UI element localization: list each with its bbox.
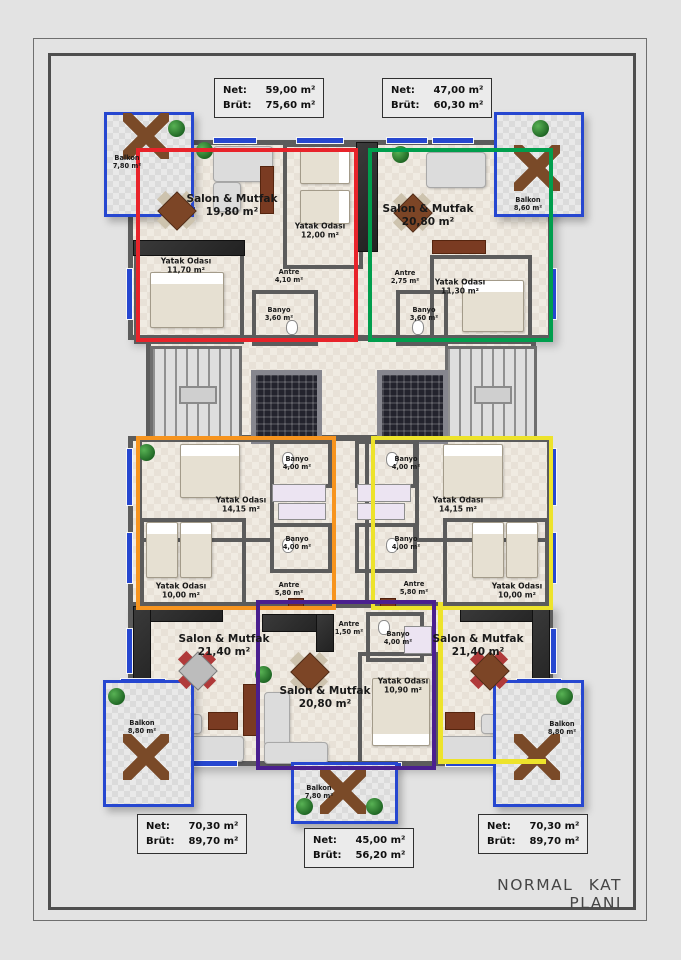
room-label-banyo: Banyo3,60 m² [265,306,293,322]
net-brut-box-top-left: Net:59,00 m² Brüt:75,60 m² [214,78,324,118]
window [126,268,133,320]
window [126,532,133,584]
room-label-banyo: Banyo4,00 m² [283,535,311,551]
net-row: Net:70,30 m² [146,819,238,834]
room-label-banyo: Banyo3,60 m² [410,306,438,322]
net-row: Net:47,00 m² [391,83,483,98]
room-label-salon: Salon & Mutfak20,80 m² [383,203,474,229]
brut-value: 89,70 m² [529,834,579,849]
room-label-salon: Salon & Mutfak19,80 m² [187,193,278,219]
brut-row: Brüt:56,20 m² [313,848,405,863]
room-label-antre: Antre2,75 m² [391,269,419,285]
room-label-antre: Antre5,80 m² [275,581,303,597]
room-label-banyo: Banyo4,00 m² [283,455,311,471]
room-label-salon: Salon & Mutfak21,40 m² [179,633,270,659]
room-label-bedroom: Yatak Odası10,00 m² [156,582,207,601]
brut-label: Brüt: [146,834,174,849]
brut-value: 60,30 m² [433,98,483,113]
brut-row: Brüt:89,70 m² [146,834,238,849]
window [126,448,133,506]
brut-value: 75,60 m² [265,98,315,113]
brut-row: Brüt:89,70 m² [487,834,579,849]
plan-title: NORMAL KAT PLANI [450,876,622,912]
brut-row: Brüt:75,60 m² [223,98,315,113]
room-label-bedroom: Yatak Odası14,15 m² [433,496,484,515]
plant [296,798,313,815]
net-value: 70,30 m² [529,819,579,834]
net-brut-box-bottom-left: Net:70,30 m² Brüt:89,70 m² [137,814,247,854]
net-label: Net: [313,833,337,848]
net-row: Net:45,00 m² [313,833,405,848]
apartment-outline-red [136,148,358,342]
net-value: 45,00 m² [355,833,405,848]
room-label-banyo: Banyo4,00 m² [384,630,412,646]
room-label-antre: Antre5,80 m² [400,580,428,596]
brut-value: 56,20 m² [355,848,405,863]
plant [168,120,185,137]
room-label-bedroom: Yatak Odası14,15 m² [216,496,267,515]
room-label-salon: Salon & Mutfak21,40 m² [433,633,524,659]
room-label-antre: Antre4,10 m² [275,268,303,284]
net-row: Net:70,30 m² [487,819,579,834]
net-label: Net: [487,819,511,834]
room-label-bedroom: Yatak Odası11,70 m² [161,257,212,276]
coffee-table [445,712,475,730]
brut-label: Brüt: [391,98,419,113]
stair-landing [474,386,512,404]
plant [108,688,125,705]
stair-landing [179,386,217,404]
apartment-outline-green [368,148,553,342]
room-label-balkon: Balkon7,80 m² [305,784,333,800]
stairs-left [150,346,242,440]
room-label-balkon: Balkon8,60 m² [514,196,542,212]
window [296,137,344,144]
brut-value: 89,70 m² [188,834,238,849]
room-label-salon: Salon & Mutfak20,80 m² [280,685,371,711]
brut-label: Brüt: [487,834,515,849]
net-label: Net: [223,83,247,98]
room-label-bedroom: Yatak Odası10,90 m² [378,677,429,696]
room-label-banyo: Banyo4,00 m² [392,535,420,551]
window [188,760,238,767]
net-value: 59,00 m² [265,83,315,98]
window [386,137,428,144]
balcony-table [123,734,169,780]
room-label-balkon: Balkon8,80 m² [128,719,156,735]
net-value: 47,00 m² [433,83,483,98]
apartment-outline-yellow-ext [438,759,546,764]
room-label-bedroom: Yatak Odası12,00 m² [295,222,346,241]
brut-label: Brüt: [223,98,251,113]
stairs-right [445,346,537,440]
tv-unit [243,684,257,736]
brut-row: Brüt:60,30 m² [391,98,483,113]
plant [532,120,549,137]
net-label: Net: [391,83,415,98]
window [126,628,133,674]
plant [556,688,573,705]
brut-label: Brüt: [313,848,341,863]
balcony-table [514,734,560,780]
plant [366,798,383,815]
window [550,628,557,674]
net-row: Net:59,00 m² [223,83,315,98]
net-value: 70,30 m² [188,819,238,834]
apartment-outline-yellow-ext [438,602,443,764]
room-label-balkon: Balkon8,80 m² [548,720,576,736]
room-label-banyo: Banyo4,00 m² [392,455,420,471]
elevator-left [251,370,322,444]
net-brut-box-bottom-middle: Net:45,00 m² Brüt:56,20 m² [304,828,414,868]
coffee-table [208,712,238,730]
room-label-bedroom: Yatak Odası11,30 m² [435,278,486,297]
net-brut-box-bottom-right: Net:70,30 m² Brüt:89,70 m² [478,814,588,854]
net-brut-box-top-right: Net:47,00 m² Brüt:60,30 m² [382,78,492,118]
room-label-balkon: Balkon7,80 m² [113,154,141,170]
net-label: Net: [146,819,170,834]
sofa [186,736,244,762]
window [432,137,474,144]
window [213,137,257,144]
room-label-bedroom: Yatak Odası10,00 m² [492,582,543,601]
room-label-antre: Antre1,50 m² [335,620,363,636]
elevator-right [377,370,448,444]
